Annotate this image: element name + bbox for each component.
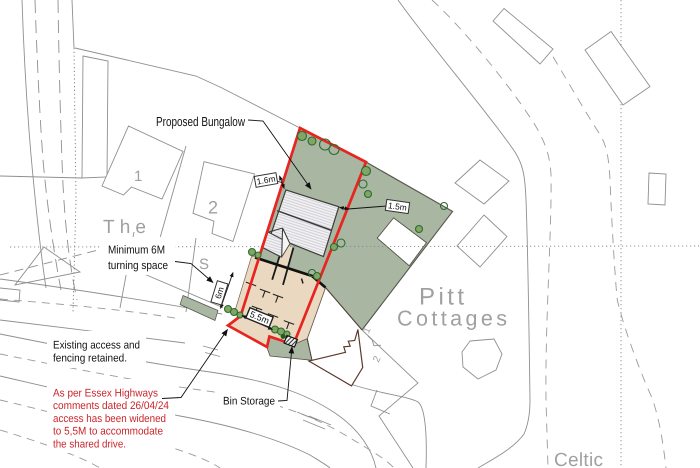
svg-text:Existing access and: Existing access and — [53, 340, 140, 352]
svg-text:to 5,5M to accommodate: to 5,5M to accommodate — [53, 426, 163, 438]
svg-text:Minimum 6M: Minimum 6M — [108, 245, 165, 257]
svg-text:fencing retained.: fencing retained. — [53, 353, 127, 365]
svg-text:the shared drive.: the shared drive. — [53, 438, 126, 450]
svg-text:Proposed Bungalow: Proposed Bungalow — [156, 114, 245, 129]
svg-text:1: 1 — [134, 168, 142, 185]
svg-text:turning space: turning space — [108, 260, 168, 272]
svg-text:comments dated 26/04/24: comments dated 26/04/24 — [53, 400, 169, 412]
svg-text:2: 2 — [208, 198, 218, 218]
svg-text:S: S — [199, 256, 209, 273]
svg-text:access has been widened: access has been widened — [53, 413, 166, 425]
svg-text:Bin Storage: Bin Storage — [223, 396, 275, 408]
svg-text:The: The — [103, 217, 146, 238]
svg-text:As per Essex Highways: As per Essex Highways — [53, 387, 158, 399]
svg-text:Celtic: Celtic — [554, 450, 603, 468]
